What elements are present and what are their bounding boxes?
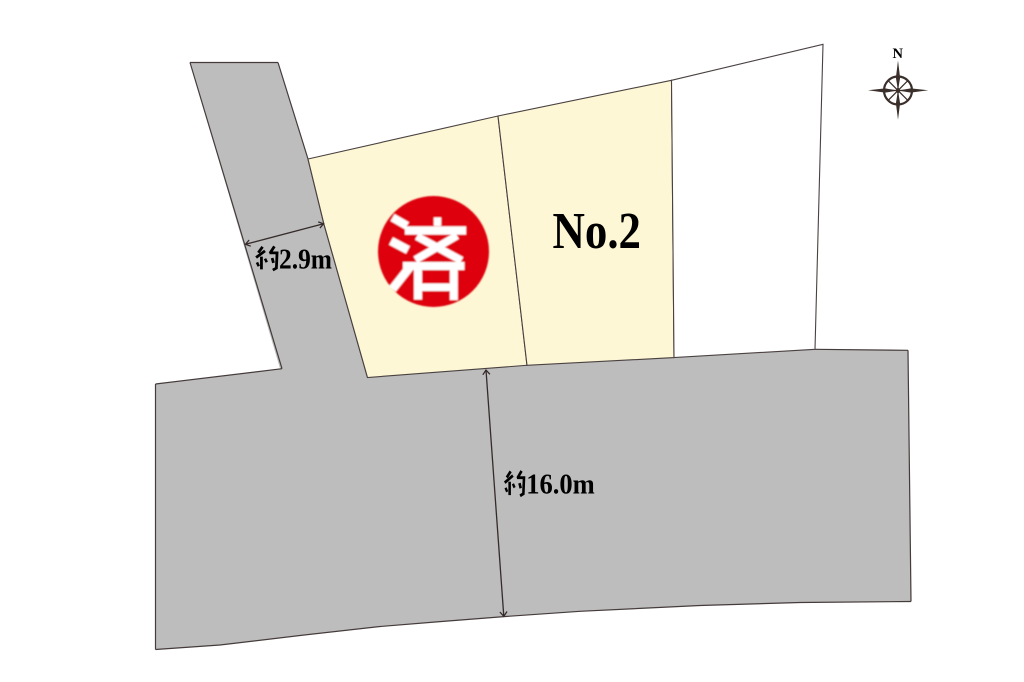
svg-text:2.9m: 2.9m [279,244,332,275]
svg-text:16.0m: 16.0m [526,470,595,501]
svg-text:N: N [893,46,904,62]
svg-text:No.2: No.2 [553,203,642,260]
